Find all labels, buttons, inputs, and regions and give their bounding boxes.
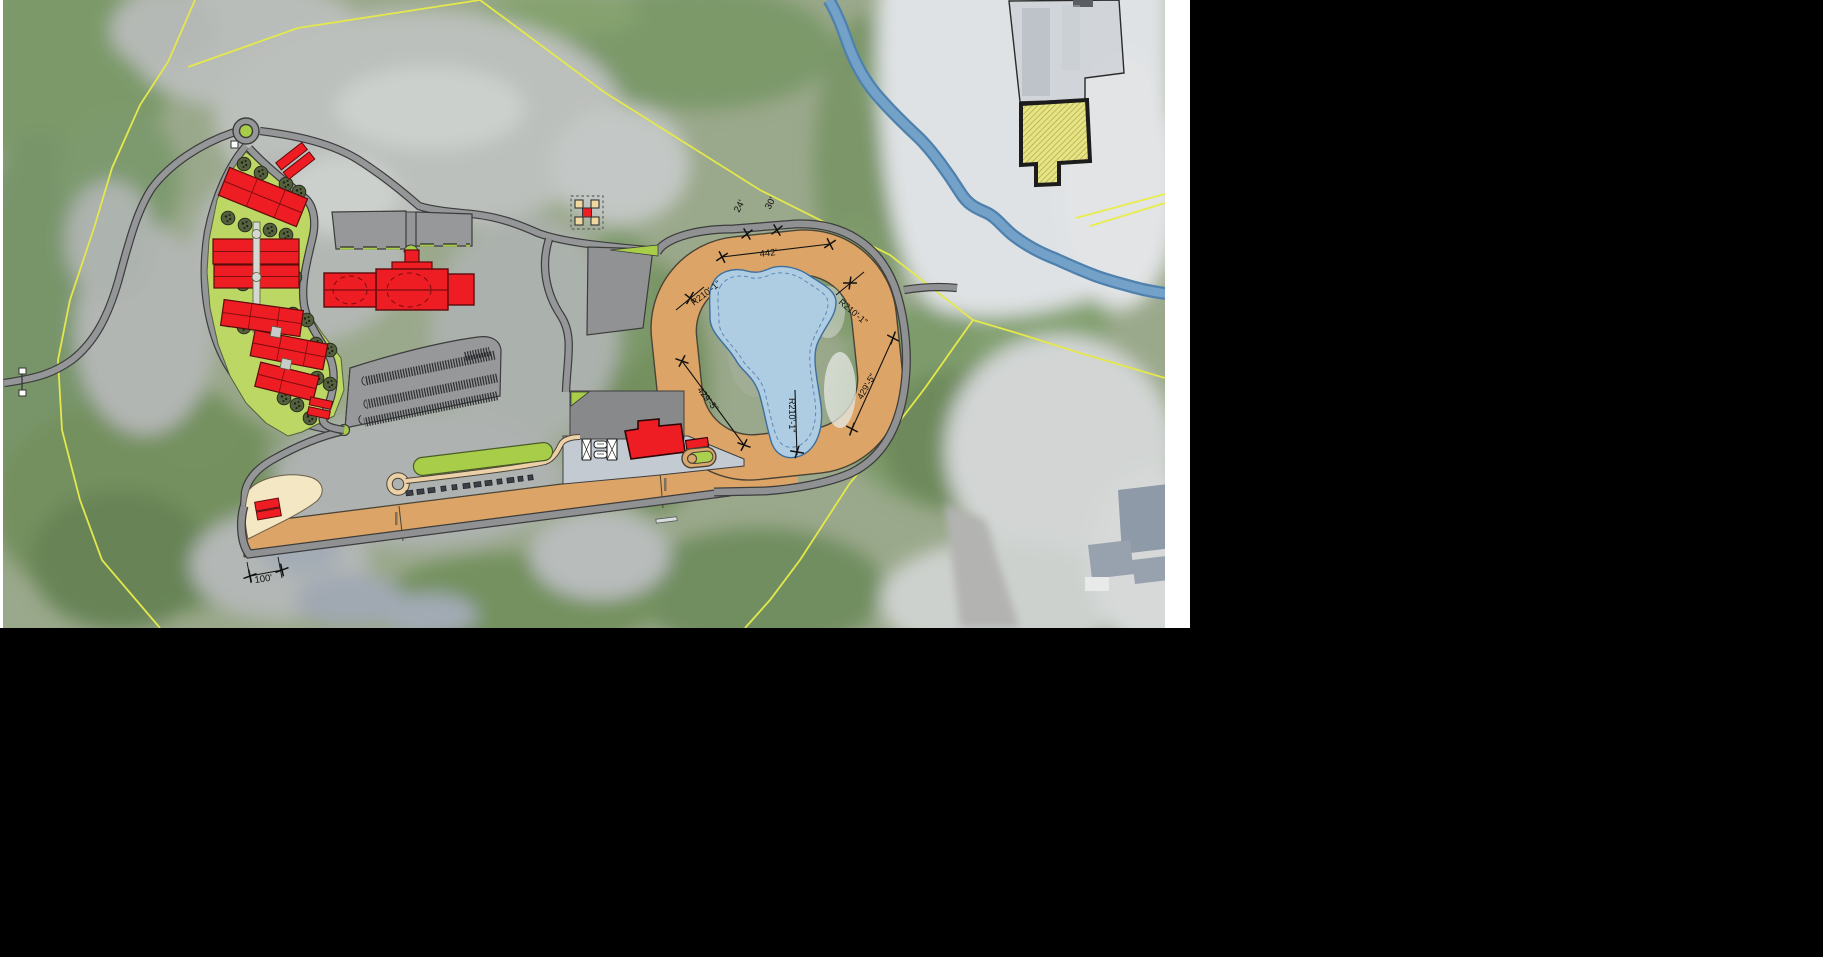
svg-text:R210'-1": R210'-1"	[787, 398, 797, 432]
svg-text:442': 442'	[759, 247, 778, 260]
